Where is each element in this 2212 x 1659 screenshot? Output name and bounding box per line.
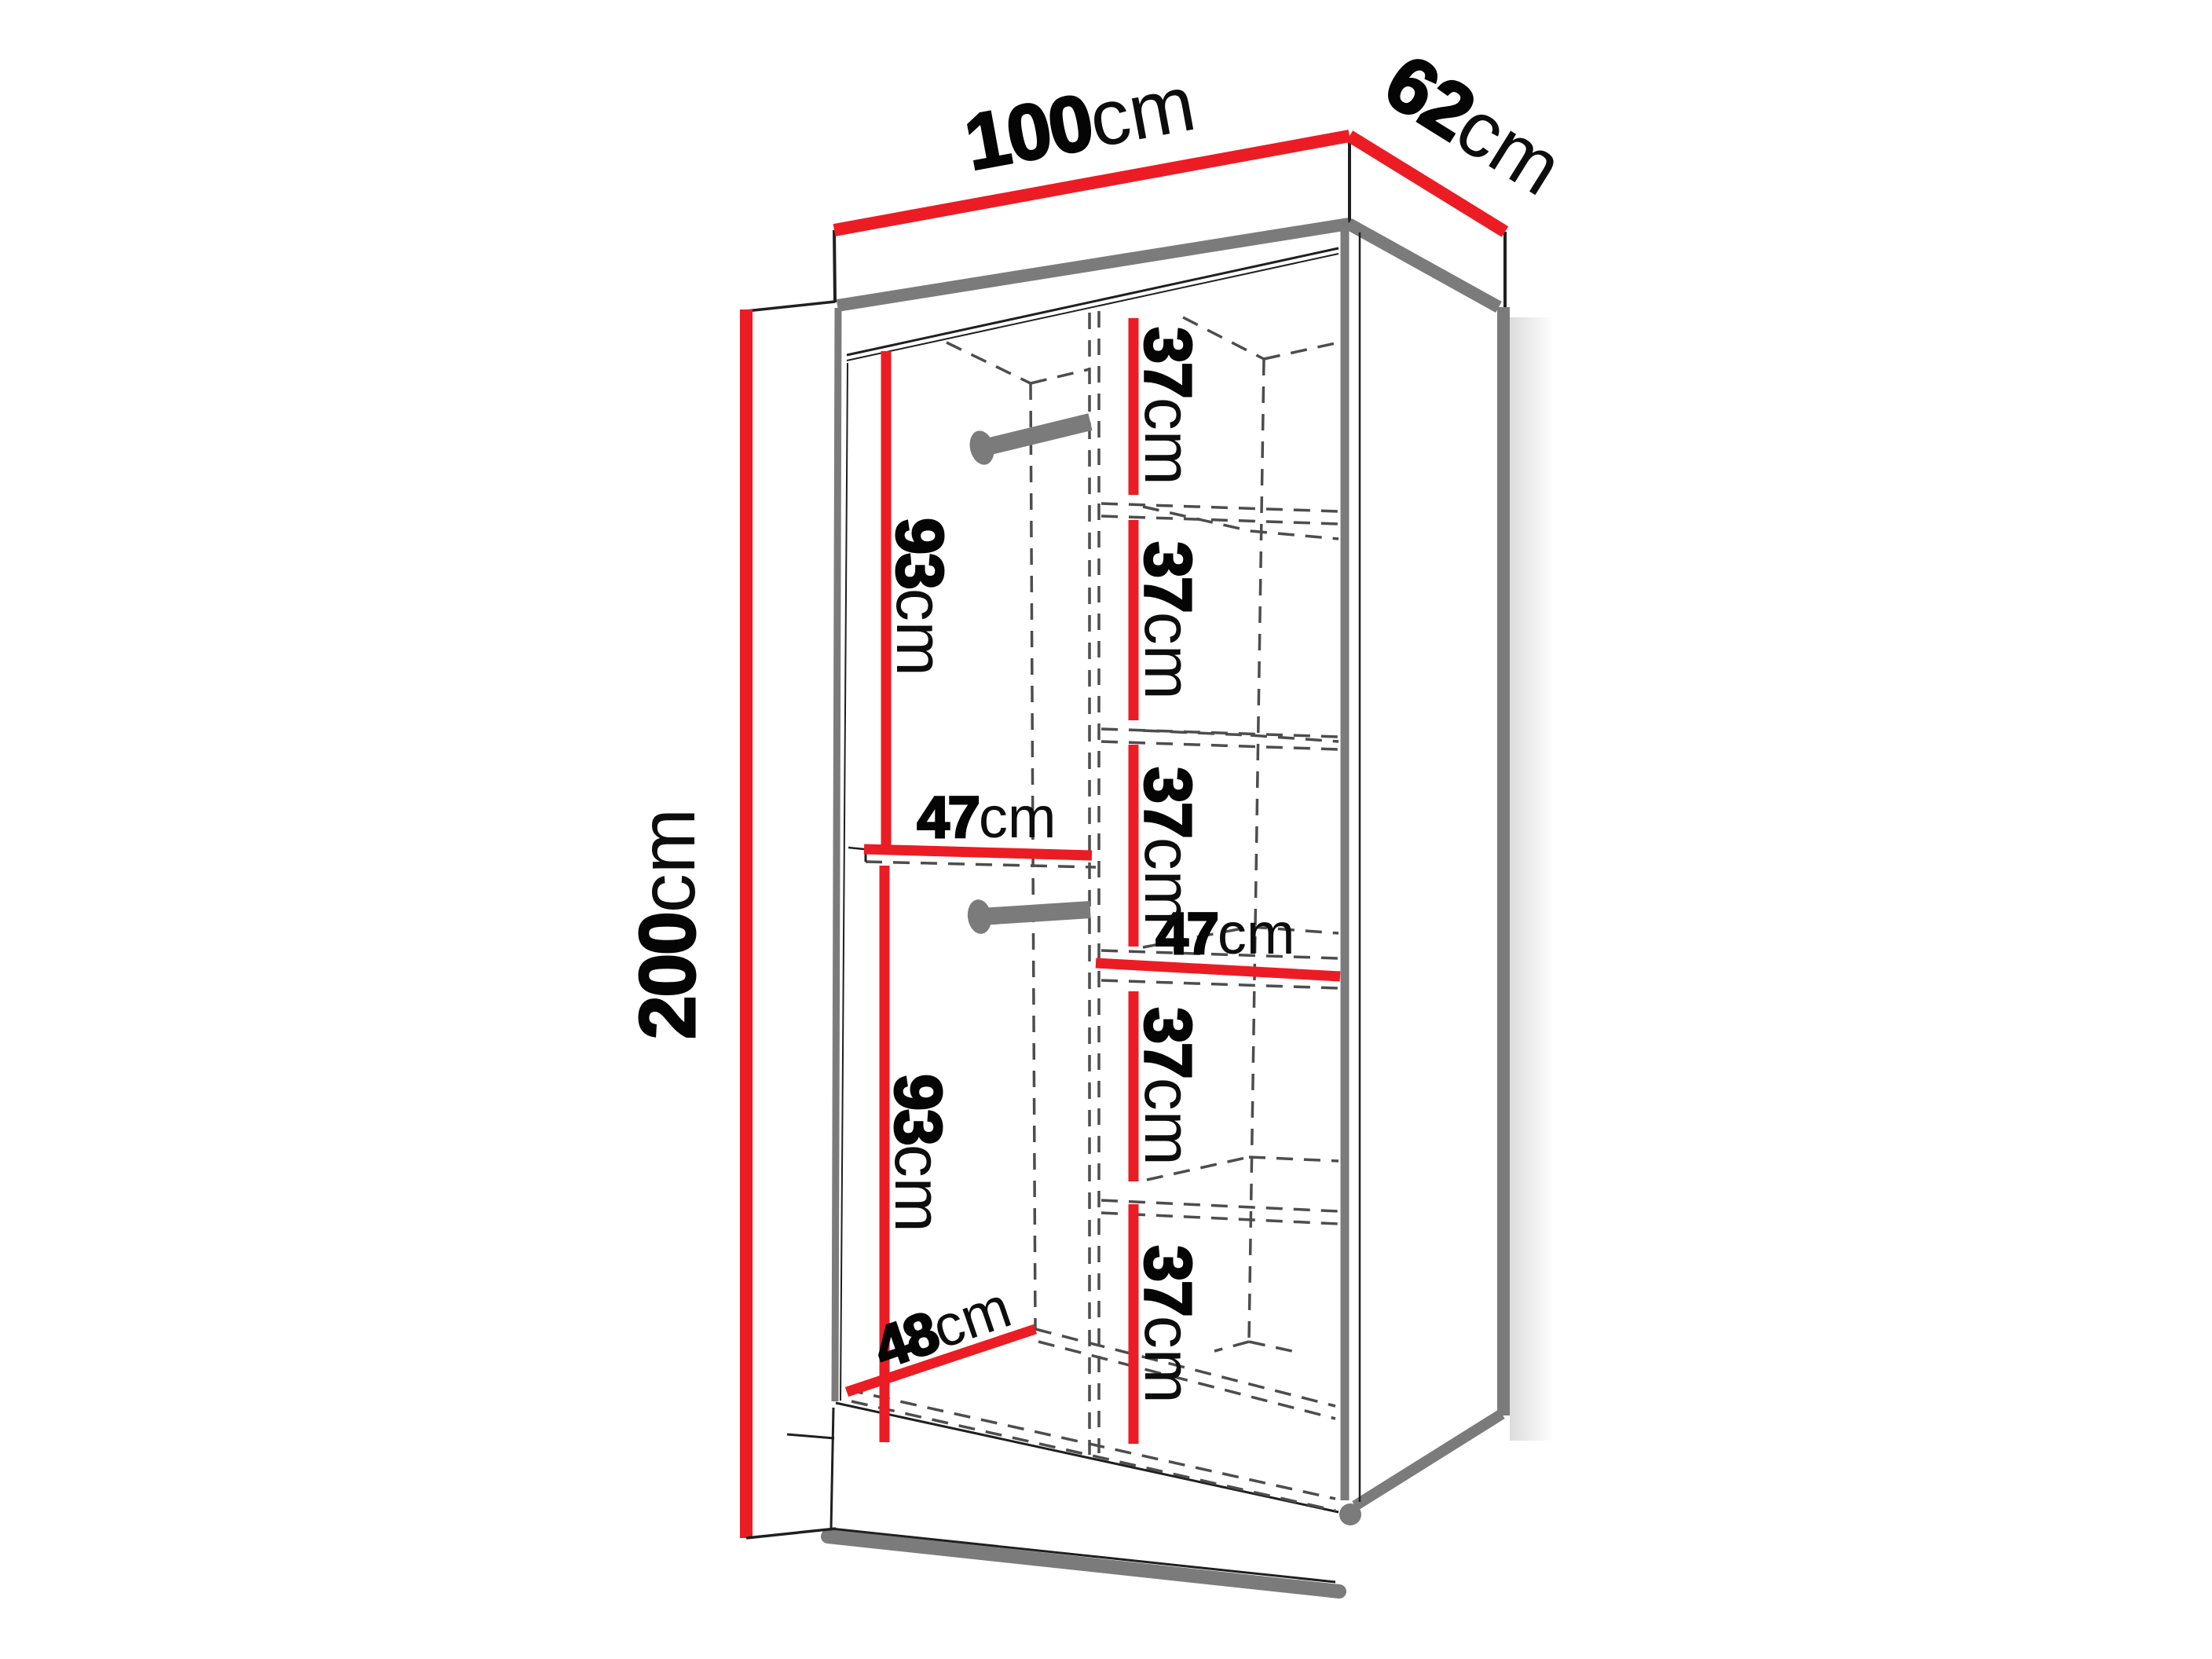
right-foot-shadow bbox=[1339, 1503, 1361, 1525]
shelf-gap-label-3: 37cm bbox=[1131, 767, 1205, 925]
shelf-gap-label-2: 37cm bbox=[1131, 541, 1205, 699]
ceiling-depth-edge-left bbox=[947, 342, 1031, 383]
lower-hanging-dimension-label: 93cm bbox=[881, 1074, 955, 1232]
shelf-back-edge bbox=[1251, 531, 1339, 539]
floor-hidden-edge-2 bbox=[851, 1401, 1335, 1511]
rail-end-cap-icon bbox=[965, 898, 994, 936]
back-bottom-stub-left bbox=[1214, 1342, 1249, 1351]
top-left-tick bbox=[746, 302, 835, 311]
back-right-corner-edge bbox=[1249, 359, 1264, 1342]
shelf-gap-label-1: 37cm bbox=[1131, 327, 1205, 485]
back-bottom-stub-right bbox=[1249, 1342, 1299, 1353]
shelf-back-edge bbox=[1249, 1157, 1339, 1161]
side-panel-shadow bbox=[1510, 317, 1554, 1441]
left-wall-edge bbox=[835, 308, 838, 1401]
floor-hidden-edge-1 bbox=[847, 1390, 1335, 1499]
rail-end-cap-icon bbox=[966, 428, 998, 467]
shelf-front-edge bbox=[1101, 729, 1339, 737]
hanging-rail-upper bbox=[966, 422, 1090, 467]
ceiling-back-edge-left bbox=[1031, 369, 1090, 383]
upper-hanging-dimension-label: 93cm bbox=[883, 518, 957, 676]
shelf-front-edge bbox=[1101, 504, 1339, 511]
crown-front-bottom-edge bbox=[837, 224, 1349, 306]
diagram-canvas: 100cm 62cm 200cm 93cm 93cm 47cm 47cm 48c… bbox=[0, 0, 2212, 1659]
hanging-rail-lower bbox=[965, 898, 1090, 936]
right-panel-bottom-edge bbox=[1355, 1414, 1502, 1506]
rail-rod-icon bbox=[983, 422, 1090, 448]
plinth-left-edge bbox=[831, 1408, 833, 1529]
left-wall-inner-line bbox=[840, 363, 848, 1401]
dimension-lines bbox=[746, 136, 1505, 1538]
shelf-front-edge2 bbox=[1101, 980, 1339, 988]
left-width-dimension-line bbox=[864, 849, 1092, 855]
ceiling-back-edge-right bbox=[1264, 343, 1335, 359]
depth-dimension-label: 62cm bbox=[1370, 38, 1577, 212]
left-width-dimension-label: 47cm bbox=[917, 785, 1057, 850]
floor-front-line bbox=[836, 1403, 1339, 1512]
plinth-bottom-line bbox=[831, 1529, 1335, 1582]
dimension-labels: 100cm 62cm 200cm 93cm 93cm 47cm 47cm 48c… bbox=[624, 38, 1577, 1404]
shelf-gap-label-5: 37cm bbox=[1131, 1245, 1205, 1403]
left-width-tick bbox=[848, 848, 864, 849]
bottom-shadow bbox=[828, 1536, 1339, 1591]
left-shelf-hidden-edge bbox=[866, 862, 1096, 867]
crown-side-bottom-edge bbox=[1349, 224, 1499, 307]
height-dimension-label: 200cm bbox=[624, 808, 712, 1039]
rail-rod-icon bbox=[981, 910, 1090, 917]
crown-left-edge bbox=[834, 230, 835, 302]
left-panel-bottom-line bbox=[787, 1434, 834, 1438]
wardrobe-dimension-diagram: 100cm 62cm 200cm 93cm 93cm 47cm 47cm 48c… bbox=[0, 0, 2212, 1659]
shelf-gap-label-4: 37cm bbox=[1131, 1007, 1205, 1165]
